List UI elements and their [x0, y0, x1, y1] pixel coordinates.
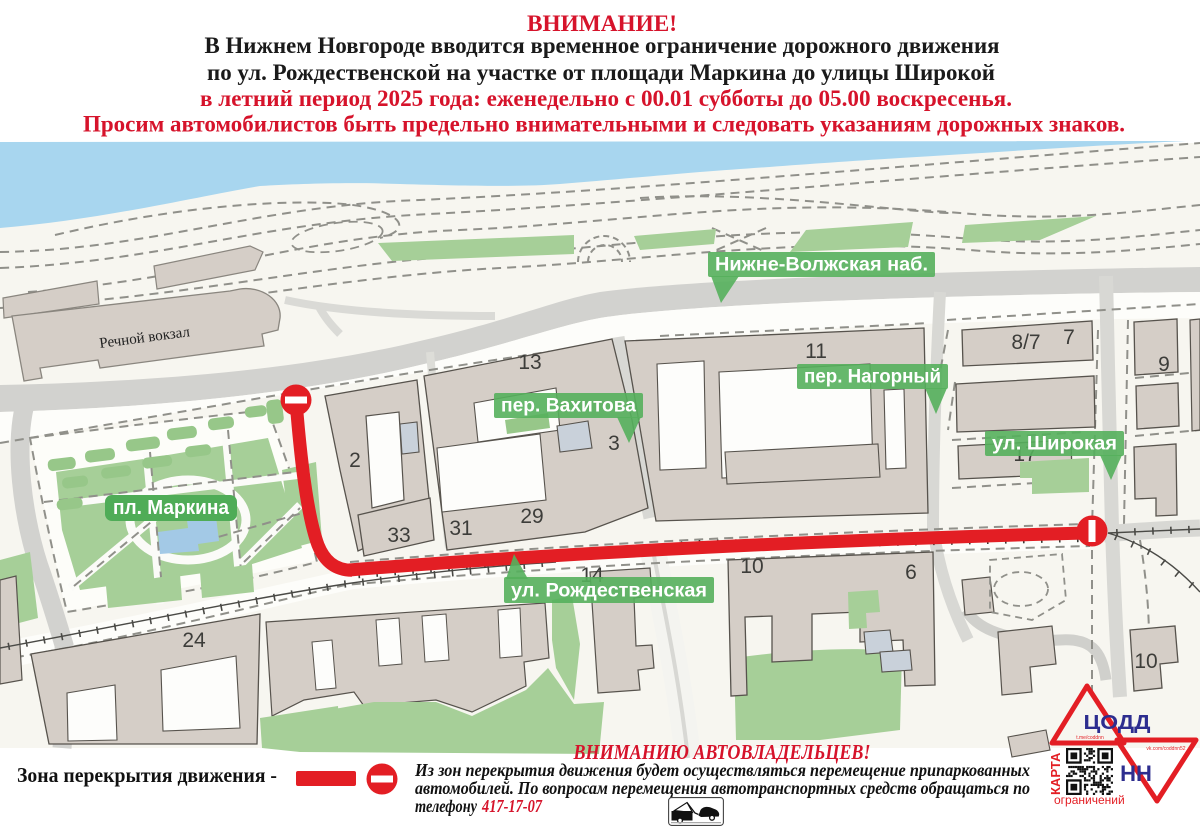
svg-text:в летний период 2025 года: еже: в летний период 2025 года: еженедельно с… — [200, 86, 1012, 112]
svg-text:10: 10 — [1134, 650, 1157, 673]
svg-text:29: 29 — [520, 505, 543, 528]
svg-text:пер. Нагорный: пер. Нагорный — [804, 367, 941, 388]
svg-text:9: 9 — [1158, 353, 1170, 376]
svg-text:33: 33 — [387, 524, 410, 547]
svg-text:пер. Вахитова: пер. Вахитова — [501, 396, 636, 417]
svg-text:КАРТА: КАРТА — [1048, 752, 1063, 795]
svg-text:417-17-07: 417-17-07 — [481, 796, 543, 816]
svg-text:24: 24 — [182, 629, 206, 652]
svg-text:ограничений: ограничений — [1054, 793, 1125, 807]
svg-text:Зона перекрытия движения -: Зона перекрытия движения - — [17, 763, 277, 787]
svg-text:11: 11 — [805, 340, 827, 363]
svg-text:8/7: 8/7 — [1011, 331, 1040, 354]
svg-text:Нижне-Волжская наб.: Нижне-Волжская наб. — [715, 255, 928, 276]
svg-text:10: 10 — [740, 555, 763, 578]
svg-text:НН: НН — [1120, 761, 1152, 786]
svg-text:2: 2 — [349, 449, 361, 472]
svg-text:Из зон перекрытия движения буд: Из зон перекрытия движения будет осущест… — [414, 760, 1030, 780]
svg-text:автомобилей. По вопросам пер: автомобилей. По вопросам перемещения авт… — [415, 778, 1030, 798]
svg-text:телефону: телефону — [415, 796, 477, 816]
svg-text:13: 13 — [518, 351, 541, 374]
svg-text:по ул. Рождественской на участ: по ул. Рождественской на участке от площ… — [207, 60, 995, 86]
svg-text:3: 3 — [608, 432, 620, 455]
svg-text:пл. Маркина: пл. Маркина — [113, 497, 230, 519]
svg-text:ЦОДД: ЦОДД — [1084, 712, 1151, 734]
svg-text:ул. Широкая: ул. Широкая — [992, 434, 1117, 455]
svg-text:В Нижнем Новгороде вводится вр: В Нижнем Новгороде вводится временное ог… — [205, 33, 1000, 59]
svg-text:6: 6 — [905, 561, 917, 584]
svg-text:ул. Рождественская: ул. Рождественская — [511, 581, 707, 602]
svg-text:7: 7 — [1063, 326, 1075, 349]
svg-text:Просим автомобилистов быть пре: Просим автомобилистов быть предельно вни… — [83, 112, 1125, 138]
svg-text:vk.com/coddnn52: vk.com/coddnn52 — [1146, 746, 1185, 752]
svg-text:t.me/coddnn: t.me/coddnn — [1076, 735, 1104, 741]
svg-text:31: 31 — [449, 517, 472, 540]
